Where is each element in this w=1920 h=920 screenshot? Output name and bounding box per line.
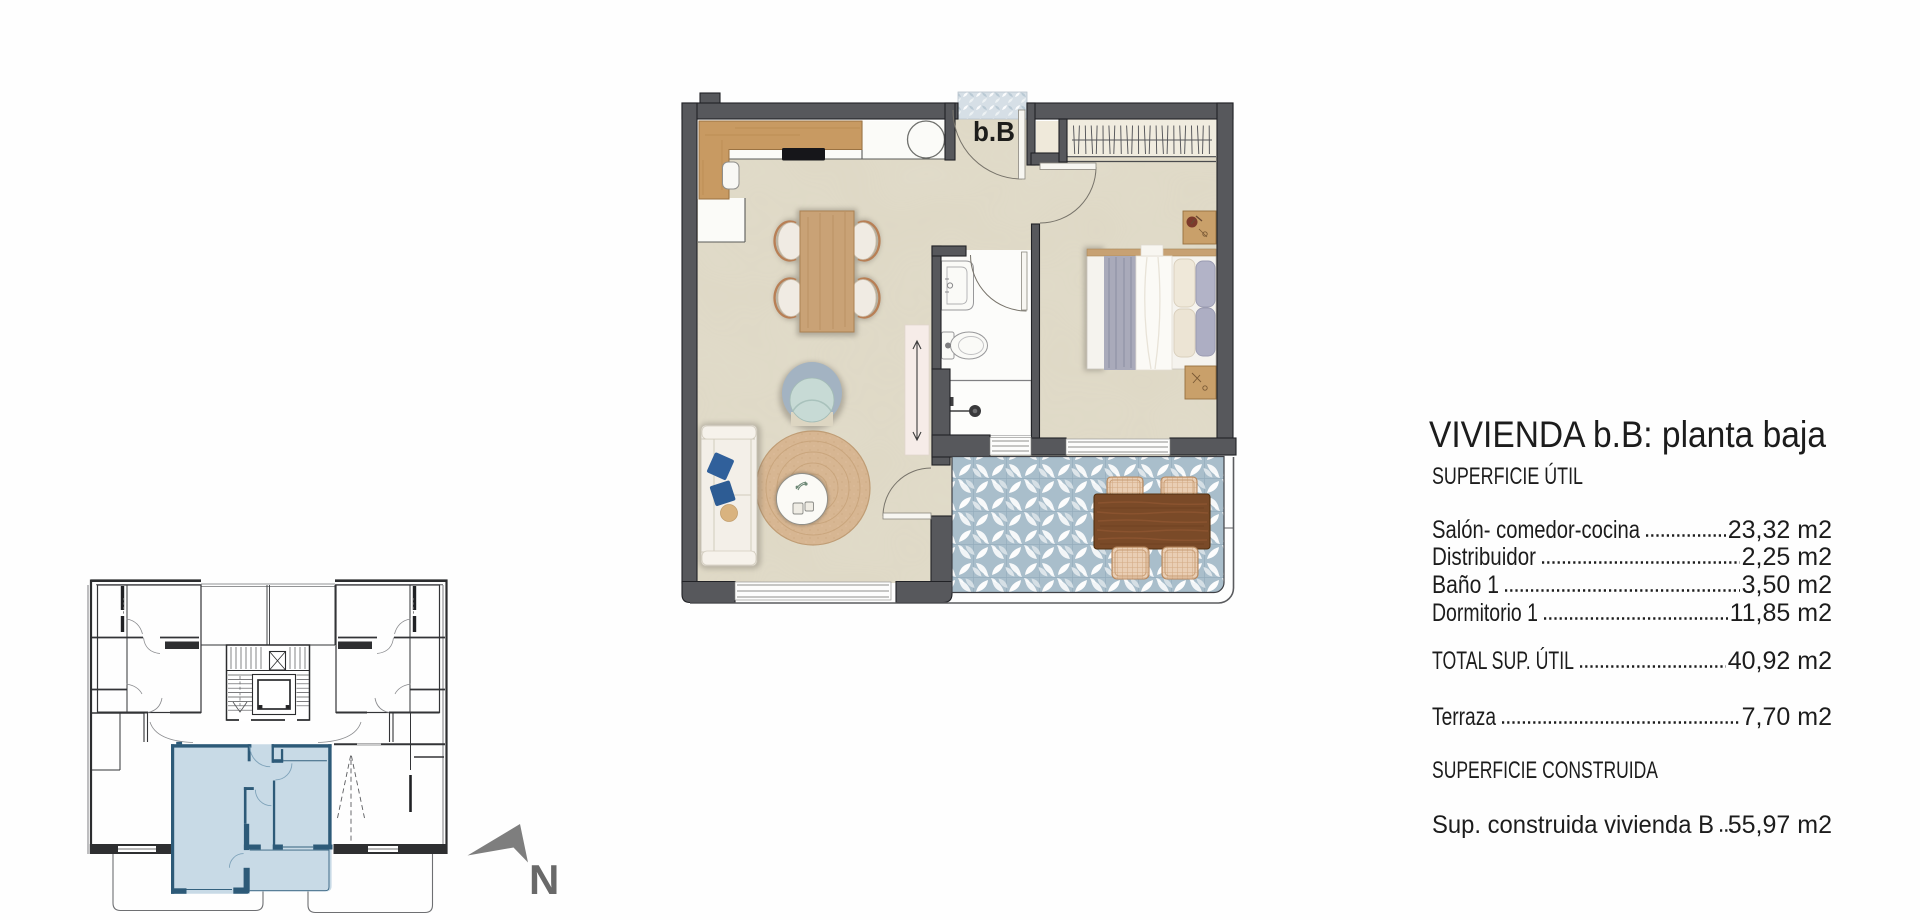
svg-text:b.B: b.B <box>973 116 1015 147</box>
svg-text:40,92 m2: 40,92 m2 <box>1728 647 1832 675</box>
svg-text:23,32 m2: 23,32 m2 <box>1728 516 1832 544</box>
svg-text:VIVIENDA b.B: planta baja: VIVIENDA b.B: planta baja <box>1429 414 1826 455</box>
svg-text:TOTAL SUP. ÚTIL: TOTAL SUP. ÚTIL <box>1432 646 1574 675</box>
svg-text:SUPERFICIE ÚTIL: SUPERFICIE ÚTIL <box>1432 463 1583 490</box>
svg-text:SUPERFICIE CONSTRUIDA: SUPERFICIE CONSTRUIDA <box>1432 757 1658 784</box>
svg-text:Sup. construida vivienda B: Sup. construida vivienda B <box>1432 811 1714 839</box>
svg-text:3,50 m2: 3,50 m2 <box>1742 571 1832 599</box>
svg-text:7,70 m2: 7,70 m2 <box>1742 703 1832 731</box>
svg-text:Baño 1: Baño 1 <box>1432 571 1499 599</box>
svg-text:Salón- comedor-cocina: Salón- comedor-cocina <box>1432 516 1640 544</box>
svg-text:N: N <box>529 856 559 903</box>
svg-text:2,25 m2: 2,25 m2 <box>1742 543 1832 571</box>
svg-text:Dormitorio 1: Dormitorio 1 <box>1432 599 1538 627</box>
svg-text:Distribuidor: Distribuidor <box>1432 543 1536 571</box>
svg-text:Terraza: Terraza <box>1432 703 1496 731</box>
svg-text:11,85 m2: 11,85 m2 <box>1730 599 1832 627</box>
svg-text:55,97 m2: 55,97 m2 <box>1728 811 1832 839</box>
